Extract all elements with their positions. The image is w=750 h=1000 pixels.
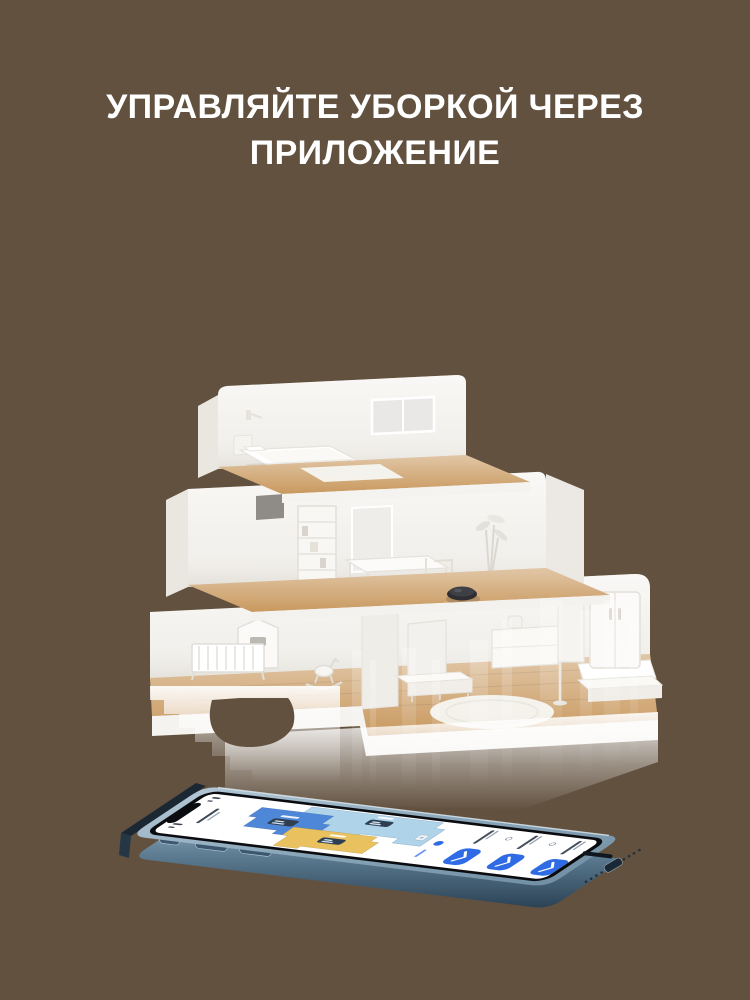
middle-left-wall bbox=[166, 489, 188, 597]
top-left-wall bbox=[198, 395, 218, 478]
bookshelf bbox=[298, 506, 336, 586]
headline-line-1: УПРАВЛЯЙТЕ УБОРКОЙ ЧЕРЕЗ bbox=[0, 84, 750, 130]
wall-window-opening bbox=[256, 494, 284, 520]
window bbox=[372, 397, 434, 434]
partition-wall bbox=[362, 604, 398, 709]
promo-banner: УПРАВЛЯЙТЕ УБОРКОЙ ЧЕРЕЗ ПРИЛОЖЕНИЕ bbox=[0, 0, 750, 1000]
phone-left-edge bbox=[119, 833, 131, 858]
headline-line-2: ПРИЛОЖЕНИЕ bbox=[0, 130, 750, 176]
middle-right-wall bbox=[546, 474, 584, 585]
headline: УПРАВЛЯЙТЕ УБОРКОЙ ЧЕРЕЗ ПРИЛОЖЕНИЕ bbox=[0, 84, 750, 176]
